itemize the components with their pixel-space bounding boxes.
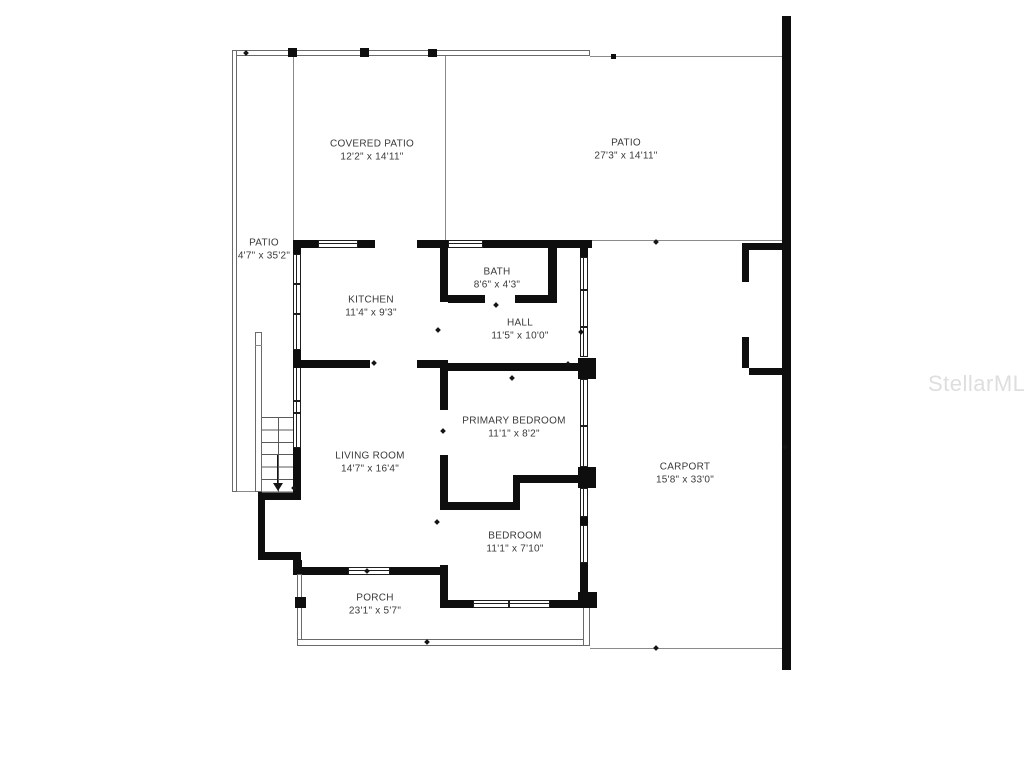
railing-post: [611, 54, 616, 59]
room-name: PRIMARY BEDROOM: [462, 416, 565, 429]
interior-wall: [440, 455, 448, 510]
window: [448, 240, 483, 248]
covered-patio-west-line: [293, 56, 294, 240]
room-label-kitchen: KITCHEN 11'4" x 9'3": [345, 295, 397, 320]
stairs-landing-tick: [255, 345, 262, 346]
porch-post: [295, 597, 306, 608]
window-mullion: [580, 289, 588, 291]
carport-top-line: [592, 240, 782, 241]
room-label-covered-patio: COVERED PATIO 12'2" x 14'11": [330, 139, 414, 164]
north-wall: [417, 240, 448, 248]
bath-south-wall: [515, 295, 557, 303]
direction-marker: [509, 375, 515, 381]
room-dims: 11'4" x 9'3": [345, 307, 397, 320]
window-mullion: [580, 425, 588, 427]
room-label-bath: BATH 8'6" x 4'3": [474, 267, 520, 292]
window-mullion: [293, 400, 301, 402]
room-name: LIVING ROOM: [335, 451, 404, 464]
room-name: PATIO: [594, 138, 657, 151]
room-dims: 23'1" x 5'7": [349, 605, 401, 618]
direction-marker: [440, 428, 446, 434]
room-dims: 11'1" x 8'2": [462, 428, 565, 441]
room-label-bedroom: BEDROOM 11'1" x 7'10": [486, 531, 543, 556]
primary-south-wall: [513, 475, 584, 483]
kitchen-south-wall: [293, 360, 370, 368]
north-wall: [483, 240, 592, 248]
patio-edge-line: [590, 56, 782, 57]
room-label-primary-bedroom: PRIMARY BEDROOM 11'1" x 8'2": [462, 416, 565, 441]
north-wall: [358, 240, 375, 248]
window: [318, 240, 358, 248]
room-label-porch: PORCH 23'1" x 5'7": [349, 593, 401, 618]
west-wall-jog: [258, 500, 265, 553]
watermark: StellarMLS: [928, 371, 1024, 397]
window-mullion: [580, 326, 588, 328]
patio-railing-left: [232, 50, 237, 492]
porch-edge-bottom: [297, 639, 589, 646]
interior-wall: [440, 360, 448, 410]
window: [473, 600, 550, 608]
window-mullion: [293, 412, 301, 414]
stairs-center-rail: [278, 417, 279, 492]
window: [293, 367, 301, 448]
window-mullion: [508, 600, 510, 608]
east-wall: [580, 517, 588, 525]
room-dims: 4'7" x 35'2": [238, 250, 290, 263]
room-dims: 11'5" x 10'0": [491, 330, 548, 343]
direction-marker: [371, 360, 377, 366]
living-south-wall: [390, 567, 448, 575]
primary-north-wall: [448, 363, 584, 371]
room-name: PORCH: [349, 593, 401, 606]
room-name: CARPORT: [656, 462, 714, 475]
west-wall-jog: [258, 552, 301, 560]
room-name: KITCHEN: [345, 295, 397, 308]
direction-marker: [493, 302, 499, 308]
west-wall-jog: [258, 492, 301, 500]
room-dims: 11'1" x 7'10": [486, 543, 543, 556]
room-label-patio-left: PATIO 4'7" x 35'2": [238, 238, 290, 263]
window: [580, 257, 588, 357]
room-label-patio-top: PATIO 27'3" x 14'11": [594, 138, 657, 163]
railing-post: [288, 48, 297, 57]
window: [580, 379, 588, 467]
north-wall: [293, 240, 318, 248]
covered-patio-east-line: [445, 56, 446, 240]
patio-railing-top: [232, 50, 590, 56]
room-name: BEDROOM: [486, 531, 543, 544]
room-dims: 15'8" x 33'0": [656, 474, 714, 487]
closet-wall: [742, 337, 749, 368]
bath-south-wall: [448, 295, 485, 303]
room-name: HALL: [491, 318, 548, 331]
east-wall-post: [578, 592, 597, 608]
room-dims: 27'3" x 14'11": [594, 150, 657, 163]
room-label-living-room: LIVING ROOM 14'7" x 16'4": [335, 451, 404, 476]
east-wall-post: [578, 358, 596, 379]
window-mullion: [293, 313, 301, 315]
window: [580, 525, 588, 563]
room-dims: 8'6" x 4'3": [474, 279, 520, 292]
room-label-hall: HALL 11'5" x 10'0": [491, 318, 548, 343]
stairs-down-arrow-icon: [273, 483, 283, 491]
carport-right-wall: [782, 16, 791, 670]
east-wall: [580, 245, 588, 257]
living-south-wall: [301, 567, 348, 575]
closet-wall: [742, 243, 782, 250]
porch-edge-left: [297, 574, 302, 645]
closet-wall: [742, 250, 749, 282]
railing-post: [428, 49, 437, 57]
floor-plan: COVERED PATIO 12'2" x 14'11" PATIO 27'3"…: [0, 0, 1024, 768]
stairs-direction-stem: [277, 455, 278, 483]
bedroom-south-wall: [440, 600, 473, 608]
direction-marker: [653, 645, 659, 651]
window: [580, 488, 588, 517]
porch-edge-right: [583, 607, 590, 646]
room-dims: 12'2" x 14'11": [330, 151, 414, 164]
room-name: PATIO: [238, 238, 290, 251]
east-wall: [580, 563, 588, 593]
bath-east-wall: [548, 245, 557, 302]
room-name: COVERED PATIO: [330, 139, 414, 152]
room-dims: 14'7" x 16'4": [335, 463, 404, 476]
room-label-carport: CARPORT 15'8" x 33'0": [656, 462, 714, 487]
direction-marker: [435, 327, 441, 333]
closet-wall: [749, 368, 782, 375]
bath-west-wall: [440, 248, 448, 302]
stairs-edge: [255, 332, 262, 492]
window: [293, 254, 301, 350]
carport-bottom-line: [590, 648, 782, 649]
window-mullion: [293, 283, 301, 285]
room-name: BATH: [474, 267, 520, 280]
primary-south-wall: [448, 502, 520, 510]
east-wall-post: [578, 467, 596, 488]
direction-marker: [434, 519, 440, 525]
railing-post: [360, 48, 369, 57]
